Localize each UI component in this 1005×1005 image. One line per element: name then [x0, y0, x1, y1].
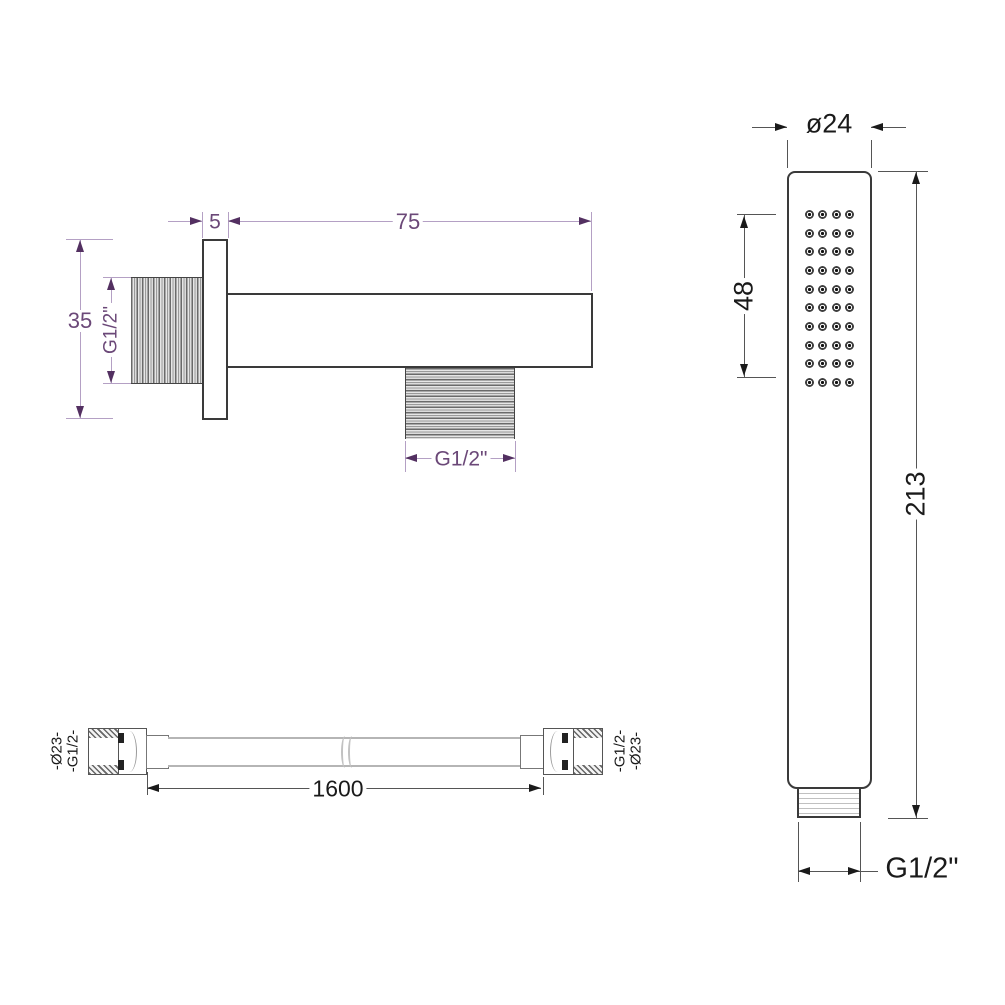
- elbow-arm: [228, 293, 593, 368]
- nozzle-row: [805, 285, 854, 294]
- nozzle-dot: [818, 341, 827, 350]
- nozzle-dot: [805, 303, 814, 312]
- nozzle-row: [805, 210, 854, 219]
- nozzle-dot: [845, 266, 854, 275]
- nozzle-dot: [805, 341, 814, 350]
- nozzle-row: [805, 341, 854, 350]
- nozzle-dot: [845, 303, 854, 312]
- nozzle-dot: [818, 247, 827, 256]
- extension-tick: [103, 383, 134, 384]
- nozzle-dot: [805, 359, 814, 368]
- nozzle-dot: [818, 378, 827, 387]
- extension-line: [871, 140, 872, 168]
- hose-right-seal: [562, 733, 568, 743]
- hose-left-crimp-curve: [122, 731, 137, 772]
- dim-arm-length: 75: [393, 211, 423, 233]
- extension-tick: [66, 418, 113, 419]
- dim-line: [798, 871, 878, 872]
- dim-connector-thread: G1/2": [882, 855, 961, 884]
- extension-tick: [737, 377, 776, 378]
- nozzle-dot: [832, 341, 841, 350]
- dim-arrow: [871, 123, 883, 131]
- dim-arrow: [405, 454, 417, 462]
- nozzle-dot: [832, 210, 841, 219]
- nozzle-row: [805, 322, 854, 331]
- dim-hose-length: 1600: [309, 778, 366, 801]
- extension-line: [591, 212, 592, 291]
- nozzle-row: [805, 303, 854, 312]
- hose-right-label-inner: -Ø23-: [629, 731, 644, 771]
- dim-arrow: [579, 217, 591, 225]
- nozzle-dot: [818, 210, 827, 219]
- nozzle-dot: [832, 285, 841, 294]
- extension-line: [543, 777, 544, 795]
- hose-left-nut: [88, 728, 119, 775]
- dim-arrow: [107, 371, 115, 383]
- nozzle-dot: [845, 229, 854, 238]
- dim-arrow: [107, 278, 115, 290]
- extension-line: [860, 822, 861, 882]
- dim-arrow: [190, 217, 202, 225]
- hose-right-collar: [520, 735, 544, 769]
- nozzle-dot: [845, 341, 854, 350]
- dim-arrow: [740, 216, 748, 228]
- dim-outlet-thread: G1/2": [432, 449, 491, 470]
- nozzle-dot: [832, 359, 841, 368]
- nozzle-dot: [805, 322, 814, 331]
- nozzle-dot: [818, 322, 827, 331]
- dim-arrow: [147, 784, 159, 792]
- technical-drawing-canvas: 5 75 35 G1/2" G1/2": [0, 0, 1005, 1005]
- handset-connector-tip: [797, 787, 861, 818]
- dim-arrow: [529, 784, 541, 792]
- dim-arrow: [912, 172, 920, 184]
- nozzle-dot: [845, 210, 854, 219]
- extension-line: [787, 140, 788, 168]
- hose-left-collar: [146, 735, 169, 769]
- nozzle-dot: [805, 378, 814, 387]
- hose-break-mark: [348, 736, 356, 768]
- hose-left-label-outer: -Ø23-: [50, 731, 65, 771]
- elbow-inlet-thread: [131, 277, 202, 384]
- nozzle-dot: [818, 285, 827, 294]
- elbow-outlet-thread: [405, 368, 515, 439]
- dim-inlet-thread: G1/2": [102, 303, 121, 357]
- nozzle-dot: [818, 266, 827, 275]
- nozzle-dot: [845, 378, 854, 387]
- dim-head-width: ø24: [803, 111, 856, 138]
- nozzle-dot: [832, 229, 841, 238]
- dim-spray-face-length: 48: [731, 278, 758, 314]
- nozzle-grid: [805, 210, 854, 387]
- nozzle-row: [805, 229, 854, 238]
- nozzle-dot: [805, 229, 814, 238]
- extension-line: [515, 441, 516, 472]
- nozzle-dot: [845, 285, 854, 294]
- dim-arrow: [228, 217, 240, 225]
- dim-arrow: [740, 364, 748, 376]
- dim-arrow: [798, 867, 810, 875]
- nozzle-dot: [832, 247, 841, 256]
- nozzle-row: [805, 359, 854, 368]
- hose-right-nut: [573, 728, 603, 775]
- dim-arrow: [848, 867, 860, 875]
- extension-tick: [737, 214, 776, 215]
- nozzle-dot: [832, 303, 841, 312]
- dim-flange-height: 35: [65, 310, 95, 332]
- nozzle-dot: [832, 322, 841, 331]
- elbow-wall-flange: [202, 239, 228, 420]
- nozzle-dot: [818, 229, 827, 238]
- nozzle-row: [805, 247, 854, 256]
- nozzle-dot: [805, 247, 814, 256]
- dim-flange-thickness: 5: [208, 212, 222, 233]
- nozzle-dot: [818, 303, 827, 312]
- extension-tick: [888, 818, 928, 819]
- extension-tick: [878, 171, 928, 172]
- nozzle-dot: [845, 247, 854, 256]
- extension-tick: [66, 239, 113, 240]
- dim-arrow: [503, 454, 515, 462]
- nozzle-dot: [818, 359, 827, 368]
- nozzle-dot: [805, 285, 814, 294]
- dim-total-length: 213: [903, 468, 930, 519]
- dim-arrow: [775, 123, 787, 131]
- extension-line: [202, 212, 203, 238]
- dim-arrow: [912, 805, 920, 817]
- nozzle-dot: [805, 210, 814, 219]
- nozzle-dot: [832, 266, 841, 275]
- dim-arrow: [76, 406, 84, 418]
- dim-arrow: [76, 240, 84, 252]
- nozzle-row: [805, 378, 854, 387]
- nozzle-dot: [832, 378, 841, 387]
- extension-line: [228, 212, 229, 238]
- nozzle-dot: [845, 322, 854, 331]
- hose-right-seal: [562, 760, 568, 770]
- hose-left-label-inner: -G1/2-: [66, 729, 81, 774]
- hose-right-label-outer: -G1/2-: [613, 729, 628, 774]
- nozzle-dot: [805, 266, 814, 275]
- nozzle-dot: [845, 359, 854, 368]
- nozzle-row: [805, 266, 854, 275]
